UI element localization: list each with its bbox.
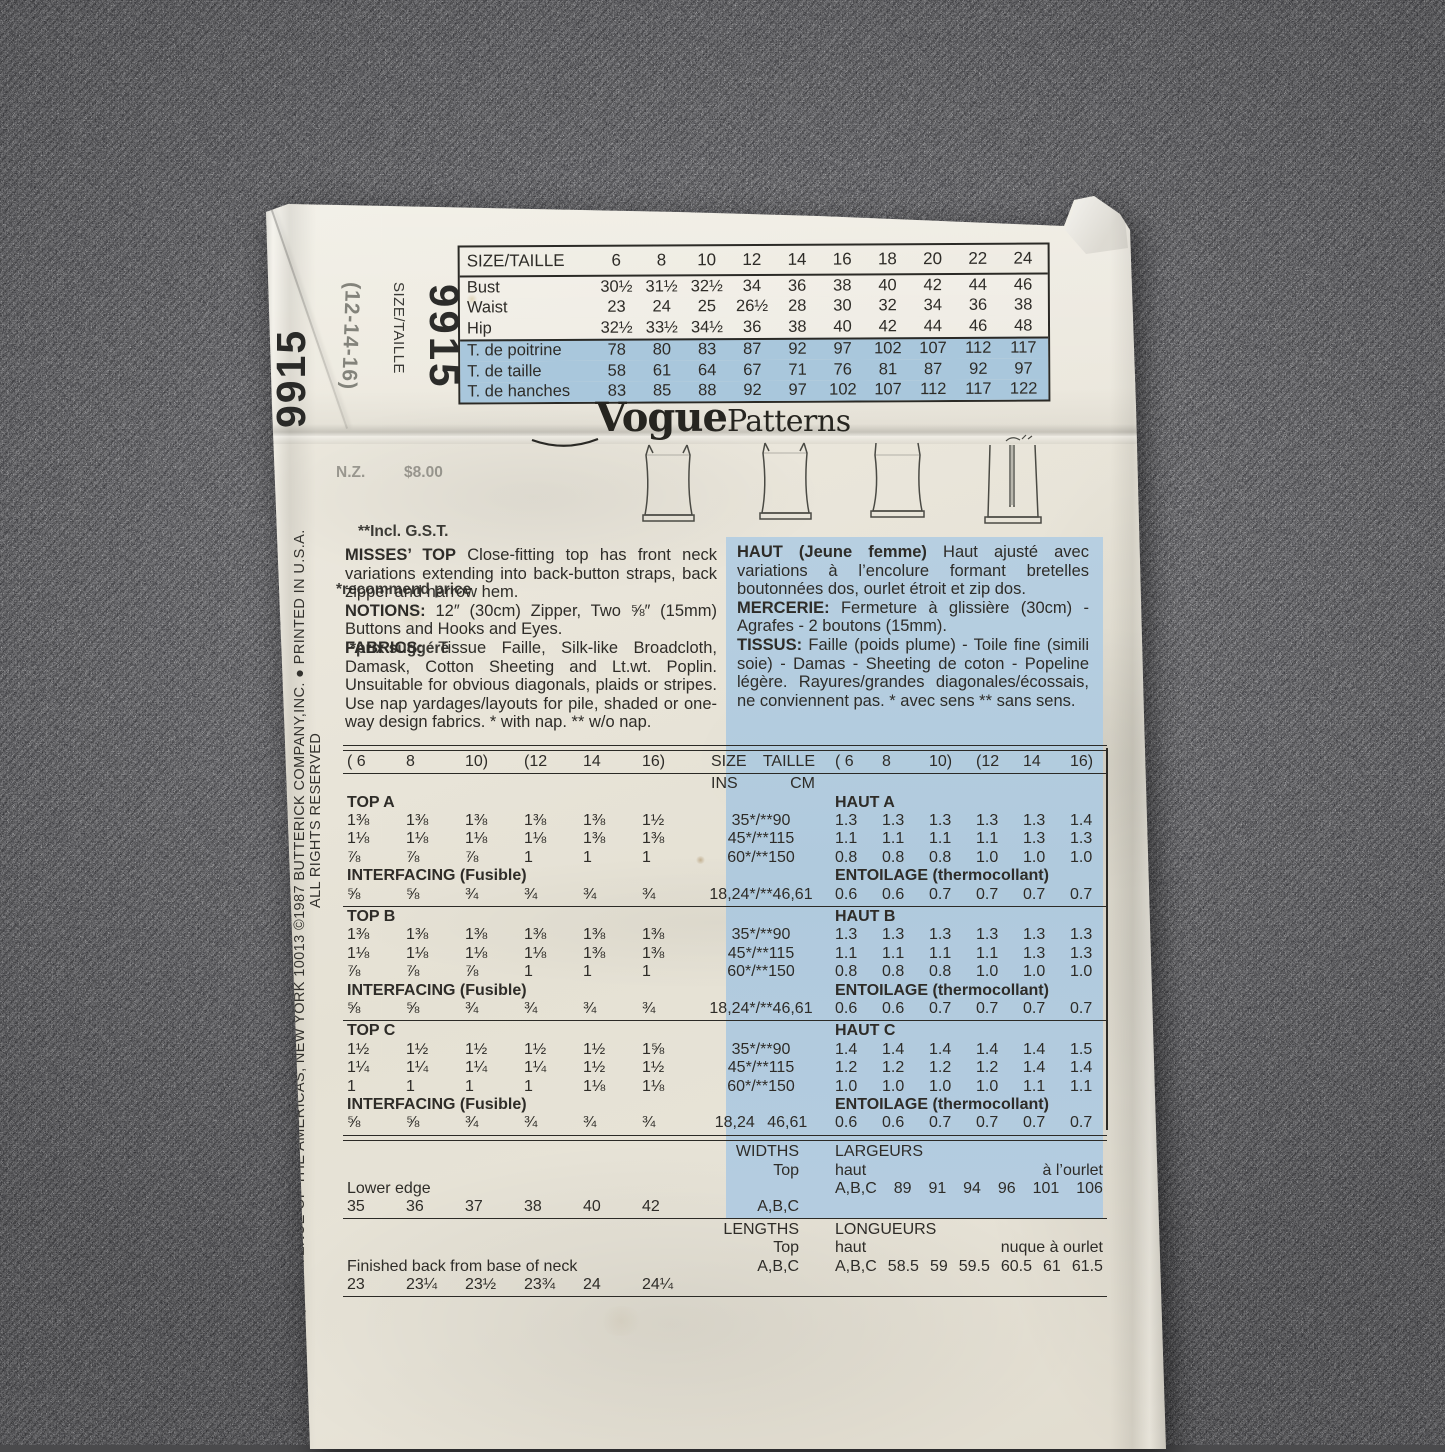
size-header-en: 8 <box>402 753 461 771</box>
yardage-units-row: INSCM <box>343 775 1107 793</box>
lengths-title-row: LENGTHSLONGUEURS <box>343 1220 1107 1238</box>
measurement-value: 30 <box>820 297 865 316</box>
size-header-fr: 10) <box>919 753 966 771</box>
measurement-value-fr: 117 <box>956 380 1001 399</box>
yardage-value-fr: 1.1 <box>872 945 919 963</box>
yardage-value-fr: 1.3 <box>1013 926 1060 944</box>
taille-header-word: TAILLE <box>763 753 815 771</box>
yardage-value-fr: 1.0 <box>1060 963 1107 981</box>
envelope-paper: 9915 (12-14-16) SIZE/TAILLE 9915 PATTERN… <box>258 196 1174 1449</box>
yardage-value-fr: 1.3 <box>919 926 966 944</box>
lengths-values-row: 2323¼23½23¾2424¼ <box>343 1276 1107 1294</box>
yardage-value-en: 1 <box>579 963 638 981</box>
top-back-view-zipper-icon <box>980 431 1046 535</box>
yardage-value-fr: 1.0 <box>1013 849 1060 867</box>
interfacing-value-en: ¾ <box>579 1000 638 1018</box>
description-mercerie: MERCERIE: Fermeture à glissière (30cm) -… <box>737 599 1089 636</box>
interfacing-width-label: 18,24 46,61 <box>697 1114 825 1132</box>
width-value-en: 42 <box>638 1198 697 1216</box>
yardage-value-fr: 1.3 <box>919 812 966 830</box>
lengths-bottom-rule <box>343 1296 1107 1297</box>
yardage-value-en: ⅞ <box>461 849 520 867</box>
measurement-value-fr: 97 <box>820 340 865 359</box>
yardage-value-en: 1½ <box>638 1059 697 1077</box>
yardage-value-en: 1⅛ <box>461 830 520 848</box>
yardage-value-en: 1⅜ <box>520 812 579 830</box>
fabric-width-label: 60*/**150 <box>697 1078 825 1096</box>
interfacing-value-fr: 0.7 <box>919 886 966 904</box>
measurement-value: 31½ <box>639 277 684 296</box>
widths-double-rule <box>343 1135 1107 1141</box>
measurement-value-fr: 76 <box>820 360 865 379</box>
size-header-en: ( 6 <box>343 753 402 771</box>
lead-tissus: TISSUS: <box>737 636 802 654</box>
measurement-value-fr: 102 <box>865 339 910 358</box>
measurement-value: 28 <box>775 297 820 316</box>
yardage-value-row: 1¼1¼1¼1¼1½1½45*/**1151.21.21.21.21.41.4 <box>343 1059 1107 1077</box>
interfacing-value-row: ⅝⅝¾¾¾¾18,24*/**46,610.60.60.70.70.70.7 <box>343 1000 1107 1018</box>
measurement-value: 42 <box>910 276 955 295</box>
yardage-value-en: 1½ <box>579 1041 638 1059</box>
yardage-value-fr: 1.1 <box>872 830 919 848</box>
interfacing-value-en: ¾ <box>638 1000 697 1018</box>
length-value-fr: 59 <box>930 1258 948 1276</box>
yardage-header-row: ( 6810)(121416)SIZETAILLE( 6810)(121416) <box>343 753 1107 771</box>
yardage-value-en: 1⅜ <box>638 830 697 848</box>
publisher-address-vertical: PATTERN SERVICE, 161 AVENUE OF THE AMERI… <box>292 529 309 1452</box>
interfacing-value-fr: 0.6 <box>825 886 872 904</box>
interfacing-value-row: ⅝⅝¾¾¾¾18,24 46,610.60.60.70.70.70.7 <box>343 1114 1107 1132</box>
yardage-value-fr: 1.0 <box>966 963 1013 981</box>
yardage-value-en: 1½ <box>343 1041 402 1059</box>
yardage-value-en: 1⅜ <box>579 812 638 830</box>
header-rule <box>343 773 1107 774</box>
yardage-value-en: 1⅜ <box>343 926 402 944</box>
interfacing-label-row: INTERFACING (Fusible)ENTOILAGE (thermoco… <box>343 981 1107 999</box>
measurement-value: 32 <box>865 296 910 315</box>
length-value-fr: 58.5 <box>888 1258 919 1276</box>
size-column-header: 22 <box>955 249 1000 269</box>
measurement-value-fr: 64 <box>685 361 730 380</box>
size-header-fr: 16) <box>1060 753 1107 771</box>
yardage-section-name-row: TOP BHAUT B <box>343 908 1107 926</box>
description-english: MISSES’ TOP Close-fitting top has front … <box>345 546 717 732</box>
yardage-value-en: 1 <box>520 963 579 981</box>
yardage-value-en: 1⅜ <box>343 812 402 830</box>
yardage-value-en: 1 <box>638 963 697 981</box>
cm-header-word: CM <box>790 775 815 793</box>
measurement-value-fr: 112 <box>956 339 1001 358</box>
yardage-value-fr: 1.0 <box>872 1078 919 1096</box>
interfacing-value-en: ¾ <box>520 1000 579 1018</box>
fabric-width-label: 60*/**150 <box>697 963 825 981</box>
measurement-value-fr: 117 <box>1001 339 1046 358</box>
interfacing-value-fr: 0.7 <box>919 1000 966 1018</box>
size-column-header: 12 <box>729 250 774 270</box>
length-value-en: 24 <box>579 1276 638 1294</box>
finished-back-label: Finished back from base of neck <box>343 1258 697 1276</box>
yardage-value-fr: 1.2 <box>966 1059 1013 1077</box>
description-haut: HAUT (Jeune femme) Haut ajusté avec vari… <box>737 543 1089 599</box>
measurement-value: 34 <box>910 296 955 315</box>
interfacing-value-fr: 0.7 <box>966 886 1013 904</box>
yardage-value-fr: 1.3 <box>872 812 919 830</box>
yardage-value-en: 1¼ <box>402 1059 461 1077</box>
measurement-value-fr: 122 <box>1001 380 1046 399</box>
interfacing-value-en: ¾ <box>461 886 520 904</box>
yardage-section-name-row: TOP AHAUT A <box>343 793 1107 811</box>
size-header-word: SIZE <box>711 753 747 771</box>
yardage-value-en: ⅞ <box>343 849 402 867</box>
lengths-sub-row: Tophautnuque à ourlet <box>343 1239 1107 1257</box>
interfacing-value-en: ⅝ <box>343 1000 402 1018</box>
price-line-nz: N.Z. $8.00 <box>336 463 471 483</box>
yardage-value-row: 1⅜1⅜1⅜1⅜1⅜1⅜35*/**901.31.31.31.31.31.3 <box>343 926 1107 944</box>
size-taille-header: SIZETAILLE <box>697 753 825 771</box>
yardage-value-fr: 1.0 <box>966 1078 1013 1096</box>
width-value-en: 40 <box>579 1198 638 1216</box>
measurement-label-fr: T. de taille <box>460 362 594 382</box>
measurement-label: Waist <box>460 298 594 318</box>
interfacing-value-en: ¾ <box>520 1114 579 1132</box>
size-column-header: 24 <box>1000 248 1045 268</box>
yardage-value-en: 1⅜ <box>579 945 638 963</box>
interfacing-width-label: 18,24*/**46,61 <box>697 1000 825 1018</box>
yardage-value-en: 1 <box>461 1078 520 1096</box>
yardage-value-en: 1 <box>343 1078 402 1096</box>
measurement-value-fr: 97 <box>1001 359 1046 378</box>
yardage-value-en: 1⅜ <box>402 812 461 830</box>
yardage-value-fr: 1.3 <box>1060 926 1107 944</box>
nuque-a-ourlet-note: nuque à ourlet <box>1001 1239 1103 1257</box>
yardage-value-en: 1 <box>579 849 638 867</box>
widths-fr-values: A,B,C89919496101106 <box>825 1180 1107 1198</box>
size-table-header-row: SIZE/TAILLE681012141618202224 <box>460 244 1048 277</box>
yardage-value-en: 1½ <box>402 1041 461 1059</box>
views-en: A,B,C <box>697 1198 825 1216</box>
size-column-header: 6 <box>594 251 639 271</box>
lead-haut: HAUT (Jeune femme) <box>737 543 927 561</box>
fabric-width-label: 60*/**150 <box>697 849 825 867</box>
yardage-value-fr: 1.1 <box>1013 1078 1060 1096</box>
measurement-value-fr: 92 <box>775 340 820 359</box>
measurement-value-fr: 71 <box>775 360 820 379</box>
lengths-label-row: Finished back from base of neckA,B,CA,B,… <box>343 1257 1107 1275</box>
yardage-value-en: 1½ <box>638 812 697 830</box>
yardage-value-en: 1⅛ <box>638 1078 697 1096</box>
largeurs-title: LARGEURS <box>825 1143 1107 1161</box>
top-back-view-c-icon <box>867 431 929 533</box>
interfacing-value-fr: 0.7 <box>966 1000 1013 1018</box>
yardage-value-fr: 1.3 <box>825 926 872 944</box>
yardage-value-fr: 1.1 <box>919 945 966 963</box>
yardage-value-fr: 1.2 <box>825 1059 872 1077</box>
lead-notions: NOTIONS: <box>345 602 426 620</box>
widths-label-row: Lower edgeA,B,C89919496101106 <box>343 1180 1107 1198</box>
measurement-value-fr: 67 <box>730 361 775 380</box>
width-value-en: 38 <box>520 1198 579 1216</box>
yardage-value-en: 1 <box>402 1078 461 1096</box>
description-fabrics: FABRICS: Tissue Faille, Silk-like Broadc… <box>345 639 717 732</box>
garment-view-drawings <box>633 431 1043 536</box>
top-back-view-b-icon <box>755 431 817 533</box>
measurement-value: 24 <box>639 298 684 317</box>
yardage-value-fr: 1.3 <box>825 812 872 830</box>
lengths-top-label: Top <box>697 1239 825 1257</box>
interfacing-label-fr: ENTOILAGE (thermocollant) <box>825 867 1107 885</box>
size-column-header: 8 <box>639 250 684 270</box>
yardage-value-row: 1⅜1⅜1⅜1⅜1⅜1½35*/**901.31.31.31.31.31.4 <box>343 812 1107 830</box>
yardage-value-fr: 1.4 <box>1060 812 1107 830</box>
yardage-section-name-row: TOP CHAUT C <box>343 1022 1107 1040</box>
interfacing-label-fr: ENTOILAGE (thermocollant) <box>825 1096 1107 1114</box>
section-name-fr: HAUT C <box>825 1022 1107 1040</box>
measurement-value: 30½ <box>594 277 639 296</box>
interfacing-value-fr: 0.6 <box>872 886 919 904</box>
width-value-fr: 91 <box>928 1180 946 1198</box>
interfacing-value-en: ⅝ <box>402 1114 461 1132</box>
measurement-label: Bust <box>460 278 594 298</box>
measurement-value: 32½ <box>684 277 729 296</box>
interfacing-value-fr: 0.6 <box>825 1114 872 1132</box>
yardage-value-row: ⅞⅞⅞11160*/**1500.80.80.81.01.01.0 <box>343 963 1107 981</box>
yardage-value-fr: 1.2 <box>872 1059 919 1077</box>
yardage-value-en: 1⅜ <box>638 945 697 963</box>
section-name-en: TOP B <box>343 908 697 926</box>
size-header-en: (12 <box>520 753 579 771</box>
size-table-row-fr: T. de poitrine788083879297102107112117 <box>460 336 1048 362</box>
description-french: HAUT (Jeune femme) Haut ajusté avec vari… <box>737 543 1089 710</box>
interfacing-value-fr: 0.7 <box>1013 1114 1060 1132</box>
yardage-value-fr: 1.4 <box>1060 1059 1107 1077</box>
yardage-value-fr: 1.3 <box>1060 945 1107 963</box>
size-header-en: 10) <box>461 753 520 771</box>
yardage-value-en: 1⅜ <box>520 926 579 944</box>
measurement-value: 34½ <box>684 318 729 337</box>
yardage-value-en: 1⅛ <box>402 945 461 963</box>
fabric-width-label: 45*/**115 <box>697 1059 825 1077</box>
yardage-value-fr: 1.1 <box>919 830 966 848</box>
length-value-en: 23 <box>343 1276 402 1294</box>
widths-sub-row: Tophautà l’ourlet <box>343 1161 1107 1179</box>
yardage-value-fr: 1.1 <box>825 830 872 848</box>
yardage-value-row: 1½1½1½1½1½1⅝35*/**901.41.41.41.41.41.5 <box>343 1040 1107 1058</box>
measurement-value: 46 <box>955 316 1000 335</box>
size-table-header-label: SIZE/TAILLE <box>460 251 594 272</box>
yardage-value-fr: 1.0 <box>1013 963 1060 981</box>
measurement-value: 23 <box>594 298 639 317</box>
yardage-value-en: 1 <box>520 1078 579 1096</box>
size-table-row-fr: T. de taille58616467717681879297 <box>460 358 1048 382</box>
ins-cm-header: INSCM <box>697 775 825 793</box>
ins-header-word: INS <box>711 775 738 793</box>
yardage-value-en: 1⅜ <box>579 926 638 944</box>
width-value-en: 37 <box>461 1198 520 1216</box>
yardage-value-en: 1⅛ <box>579 1078 638 1096</box>
length-value-fr: 61 <box>1043 1258 1061 1276</box>
interfacing-value-en: ¾ <box>520 886 579 904</box>
width-value-en: 35 <box>343 1198 402 1216</box>
interfacing-value-en: ⅝ <box>402 886 461 904</box>
yardage-value-fr: 1.0 <box>966 849 1013 867</box>
measurement-value-fr: 61 <box>639 361 684 380</box>
yardage-value-fr: 1.5 <box>1060 1041 1107 1059</box>
interfacing-value-en: ¾ <box>461 1000 520 1018</box>
length-value-en: 23½ <box>461 1276 520 1294</box>
size-header-en: 14 <box>579 753 638 771</box>
body-measurement-table: SIZE/TAILLE681012141618202224Bust30½31½3… <box>458 242 1051 404</box>
length-value-fr: 60.5 <box>1001 1258 1032 1276</box>
yardage-value-fr: 1.3 <box>966 812 1013 830</box>
yardage-value-fr: 1.3 <box>1013 945 1060 963</box>
measurement-value: 36 <box>775 276 820 295</box>
yardage-value-fr: 0.8 <box>825 849 872 867</box>
measurement-value-fr: 92 <box>956 359 1001 378</box>
yardage-value-fr: 1.4 <box>966 1041 1013 1059</box>
interfacing-label-row: INTERFACING (Fusible)ENTOILAGE (thermoco… <box>343 867 1107 885</box>
measurement-value: 36 <box>955 296 1000 315</box>
yardage-value-en: 1½ <box>461 1041 520 1059</box>
interfacing-label-en: INTERFACING (Fusible) <box>343 1096 697 1114</box>
yardage-value-en: 1¼ <box>520 1059 579 1077</box>
size-header-fr: 14 <box>1013 753 1060 771</box>
measurement-value: 42 <box>865 317 910 336</box>
all-rights-reserved-vertical: ALL RIGHTS RESERVED <box>308 733 324 908</box>
size-header-fr: (12 <box>966 753 1013 771</box>
size-range-rotated: (12-14-16) <box>336 282 364 391</box>
measurement-value-fr: 78 <box>594 341 639 360</box>
lead-fabrics: FABRICS: <box>345 639 423 657</box>
description-tissus: TISSUS: Faille (poids plume) - Toile fin… <box>737 636 1089 710</box>
interfacing-value-fr: 0.7 <box>1060 1000 1107 1018</box>
size-header-fr: 8 <box>872 753 919 771</box>
size-header-en: 16) <box>638 753 697 771</box>
section-name-fr: HAUT B <box>825 908 1107 926</box>
section-name-en: TOP A <box>343 794 697 812</box>
size-header-fr: ( 6 <box>825 753 872 771</box>
length-value-fr: 59.5 <box>959 1258 990 1276</box>
interfacing-value-row: ⅝⅝¾¾¾¾18,24*/**46,610.60.60.70.70.70.7 <box>343 885 1107 903</box>
yardage-value-row: 11111⅛1⅛60*/**1501.01.01.01.01.11.1 <box>343 1077 1107 1095</box>
measurement-label: Hip <box>460 319 594 339</box>
interfacing-value-en: ¾ <box>461 1114 520 1132</box>
lengths-title: LENGTHS <box>697 1221 825 1239</box>
yardage-value-en: 1⅜ <box>579 830 638 848</box>
interfacing-label-en: INTERFACING (Fusible) <box>343 867 697 885</box>
yardage-value-row: 1⅛1⅛1⅛1⅛1⅜1⅜45*/**1151.11.11.11.11.31.3 <box>343 944 1107 962</box>
lead-misses-top: MISSES’ TOP <box>345 546 456 564</box>
yardage-value-en: ⅞ <box>343 963 402 981</box>
yardage-value-en: 1½ <box>579 1059 638 1077</box>
interfacing-label-fr: ENTOILAGE (thermocollant) <box>825 982 1107 1000</box>
measurement-value: 25 <box>684 297 729 316</box>
photo-of-pattern-envelope: { "flap": { "pattern_number": "9915", "s… <box>0 0 1445 1445</box>
yardage-value-en: 1⅛ <box>461 945 520 963</box>
measurement-value: 36 <box>730 318 775 337</box>
interfacing-value-fr: 0.7 <box>1013 1000 1060 1018</box>
widths-title: WIDTHS <box>697 1143 825 1161</box>
section-name-fr: HAUT A <box>825 794 1107 812</box>
yardage-value-en: 1⅛ <box>343 830 402 848</box>
yardage-value-fr: 1.0 <box>919 1078 966 1096</box>
section-rule <box>343 1020 1107 1021</box>
measurement-label-fr: T. de poitrine <box>460 341 594 361</box>
measurement-value: 40 <box>820 317 865 336</box>
logo-swash-icon <box>530 436 600 450</box>
widths-title-row: WIDTHSLARGEURS <box>343 1143 1107 1161</box>
yardage-value-en: 1⅜ <box>461 812 520 830</box>
measurement-value: 46 <box>1000 275 1045 294</box>
yardage-value-en: 1 <box>638 849 697 867</box>
measurement-value: 26½ <box>729 297 774 316</box>
yardage-value-en: 1⅝ <box>638 1041 697 1059</box>
yardage-value-fr: 0.8 <box>825 963 872 981</box>
measurement-value: 32½ <box>594 318 639 337</box>
widths-bottom-rule <box>343 1218 1107 1219</box>
measurement-value-fr: 58 <box>594 361 639 380</box>
yardage-value-fr: 0.8 <box>919 849 966 867</box>
measurement-value-fr: 83 <box>684 340 729 359</box>
measurement-value: 38 <box>820 276 865 295</box>
interfacing-value-fr: 0.7 <box>966 1114 1013 1132</box>
section-name-en: TOP C <box>343 1022 697 1040</box>
stain-spot <box>598 1306 644 1336</box>
interfacing-value-en: ¾ <box>579 1114 638 1132</box>
length-value-en: 23¾ <box>520 1276 579 1294</box>
measurement-value: 48 <box>1001 316 1046 335</box>
views-fr: A,B,C <box>835 1180 877 1198</box>
size-column-header: 18 <box>865 249 910 269</box>
interfacing-label-row: INTERFACING (Fusible)ENTOILAGE (thermoco… <box>343 1096 1107 1114</box>
pattern-number-left-edge: 9915 <box>268 329 315 428</box>
views-en: A,B,C <box>697 1258 825 1276</box>
yardage-value-en: 1⅛ <box>402 830 461 848</box>
yardage-value-fr: 1.3 <box>966 926 1013 944</box>
yardage-value-fr: 1.3 <box>872 926 919 944</box>
interfacing-value-fr: 0.6 <box>825 1000 872 1018</box>
top-double-rule <box>343 745 1107 751</box>
interfacing-width-label: 18,24*/**46,61 <box>697 886 825 904</box>
lengths-fr-sub: hautnuque à ourlet <box>825 1239 1107 1257</box>
width-value-fr: 106 <box>1076 1180 1103 1198</box>
yardage-value-fr: 0.8 <box>872 963 919 981</box>
yardage-value-en: 1⅜ <box>638 926 697 944</box>
interfacing-value-en: ⅝ <box>402 1000 461 1018</box>
width-value-en: 36 <box>402 1198 461 1216</box>
pattern-envelope-back: 9915 (12-14-16) SIZE/TAILLE 9915 PATTERN… <box>258 196 1174 1449</box>
measurement-value-fr: 87 <box>911 360 956 379</box>
size-table-row-en: Hip32½33½34½36384042444648 <box>460 315 1048 339</box>
yardage-value-fr: 1.1 <box>966 945 1013 963</box>
measurement-value: 38 <box>775 317 820 336</box>
fabric-width-label: 45*/**115 <box>697 830 825 848</box>
interfacing-value-en: ¾ <box>638 1114 697 1132</box>
yardage-value-en: 1⅛ <box>520 830 579 848</box>
width-value-fr: 96 <box>998 1180 1016 1198</box>
yardage-value-fr: 1.1 <box>1060 1078 1107 1096</box>
yardage-value-en: 1½ <box>520 1041 579 1059</box>
measurement-value: 34 <box>729 277 774 296</box>
lower-edge-label: Lower edge <box>343 1180 697 1198</box>
yardage-value-en: 1⅛ <box>520 945 579 963</box>
yardage-value-en: ⅞ <box>402 963 461 981</box>
yardage-value-fr: 1.2 <box>919 1059 966 1077</box>
measurement-value: 40 <box>865 276 910 295</box>
yardage-value-fr: 1.0 <box>1060 849 1107 867</box>
interfacing-value-fr: 0.7 <box>1013 886 1060 904</box>
haut-label: haut <box>835 1239 866 1257</box>
interfacing-value-en: ¾ <box>579 886 638 904</box>
